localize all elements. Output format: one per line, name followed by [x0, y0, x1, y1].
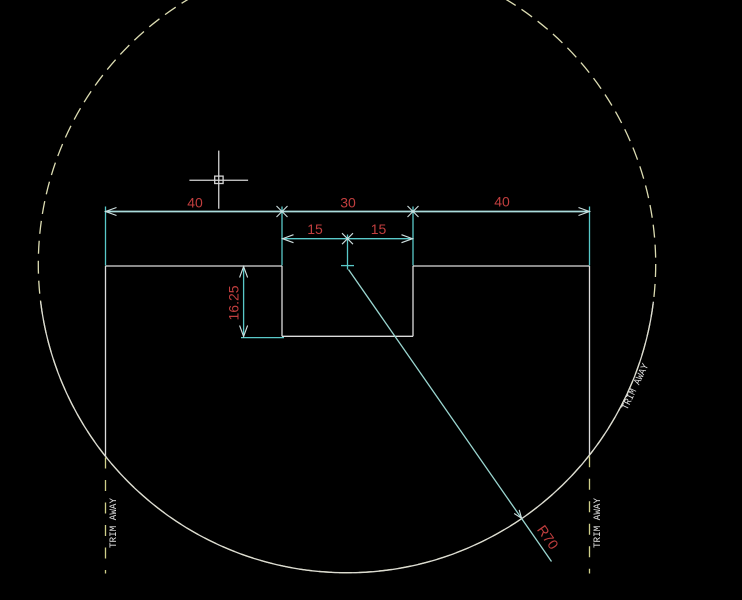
svg-text:TRIM AWAY: TRIM AWAY: [109, 498, 120, 548]
svg-text:TRIM AWAY: TRIM AWAY: [593, 498, 604, 548]
svg-text:40: 40: [187, 195, 203, 211]
svg-text:40: 40: [494, 194, 510, 210]
svg-text:15: 15: [371, 221, 387, 237]
svg-text:16.25: 16.25: [226, 285, 242, 320]
svg-text:30: 30: [340, 195, 356, 211]
svg-text:15: 15: [307, 221, 323, 237]
